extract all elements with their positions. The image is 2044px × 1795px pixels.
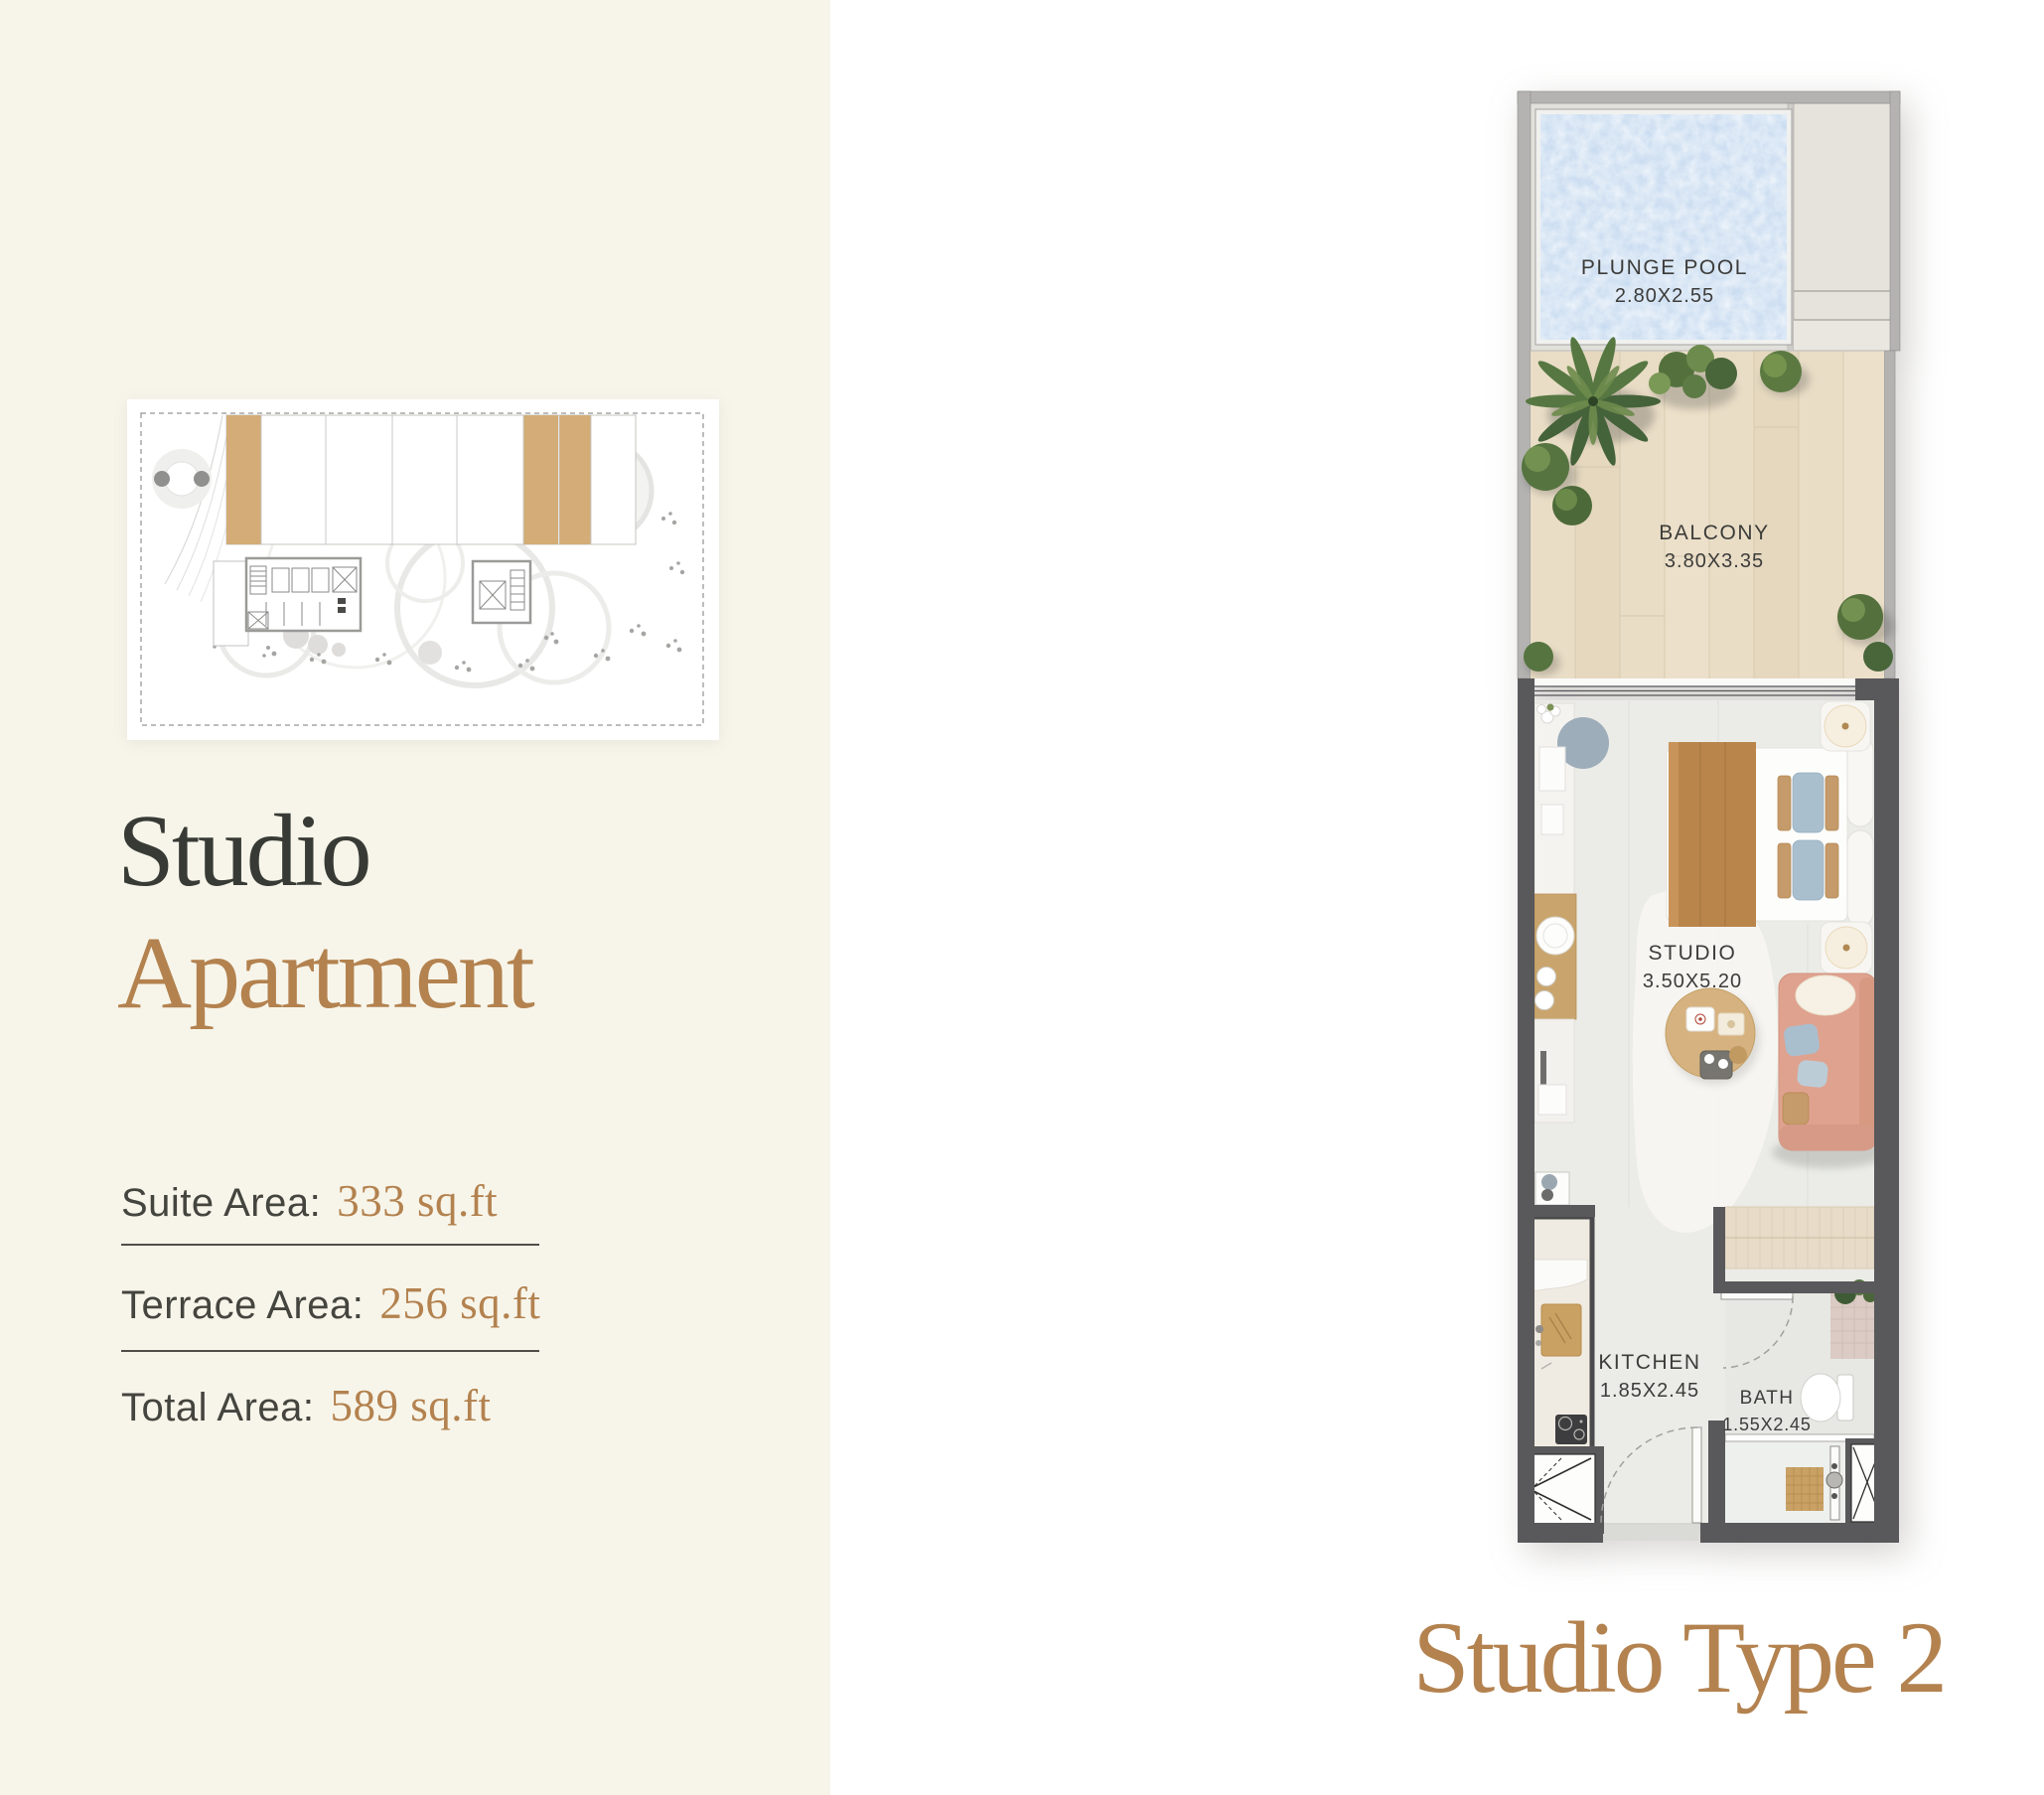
plan-type-title: Studio Type 2 xyxy=(1412,1602,1945,1715)
site-unit-band xyxy=(226,415,636,544)
sofa-cushion xyxy=(1796,975,1855,1015)
terrace-area-value: 256 sq.ft xyxy=(379,1277,540,1329)
bath-label: BATH xyxy=(1740,1388,1795,1409)
terrace-area-label: Terrace Area: xyxy=(121,1283,364,1328)
brochure-page: { "left_panel": { "unit_title": { "line1… xyxy=(0,0,2044,1795)
floor-plan: PLUNGE POOL 2.80X2.55 BALCONY 3.80X3.35 … xyxy=(1490,79,1937,1560)
interior xyxy=(1518,700,1899,1543)
balcony-label: BALCONY xyxy=(1659,522,1770,544)
studio-dims: 3.50X5.20 xyxy=(1643,971,1742,992)
sofa xyxy=(1772,973,1887,1168)
plunge-pool-dims: 2.80X2.55 xyxy=(1615,285,1714,307)
total-area-row: Total Area: 589 sq.ft xyxy=(121,1380,492,1431)
bed xyxy=(1667,737,1873,927)
entry-threshold xyxy=(1603,1525,1698,1541)
suite-area-label: Suite Area: xyxy=(121,1181,321,1226)
terrace-side-panel xyxy=(1788,103,1892,351)
unit-title-line2: Apartment xyxy=(117,913,532,1035)
balcony xyxy=(1522,335,1893,678)
site-plan-drawing xyxy=(127,399,719,740)
total-area-label: Total Area: xyxy=(121,1386,315,1430)
kitchen-label: KITCHEN xyxy=(1598,1351,1700,1374)
unit-title-line1: Studio xyxy=(117,794,369,908)
unit-title: Studio Apartment xyxy=(117,791,532,1034)
bed-blanket xyxy=(1669,742,1756,927)
divider xyxy=(121,1350,539,1352)
left-panel: Studio Apartment Suite Area: 333 sq.ft T… xyxy=(0,0,830,1795)
suite-area-row: Suite Area: 333 sq.ft xyxy=(121,1175,498,1227)
total-area-value: 589 sq.ft xyxy=(331,1380,492,1431)
bath-dims: 1.55X2.45 xyxy=(1722,1415,1811,1434)
divider xyxy=(121,1244,539,1246)
plunge-pool-label: PLUNGE POOL xyxy=(1581,256,1748,279)
studio-label: STUDIO xyxy=(1649,942,1737,965)
terrace-area-row: Terrace Area: 256 sq.ft xyxy=(121,1277,540,1329)
closet xyxy=(1725,1207,1874,1269)
balcony-dims: 3.80X3.35 xyxy=(1665,550,1764,572)
kitchen-counter xyxy=(1531,1217,1592,1453)
site-plan-thumbnail xyxy=(127,399,719,740)
plunge-pool xyxy=(1535,109,1792,345)
site-building-cores xyxy=(214,558,530,646)
kitchen-dims: 1.85X2.45 xyxy=(1600,1380,1699,1402)
window-wall xyxy=(1518,678,1899,702)
suite-area-value: 333 sq.ft xyxy=(337,1175,498,1227)
